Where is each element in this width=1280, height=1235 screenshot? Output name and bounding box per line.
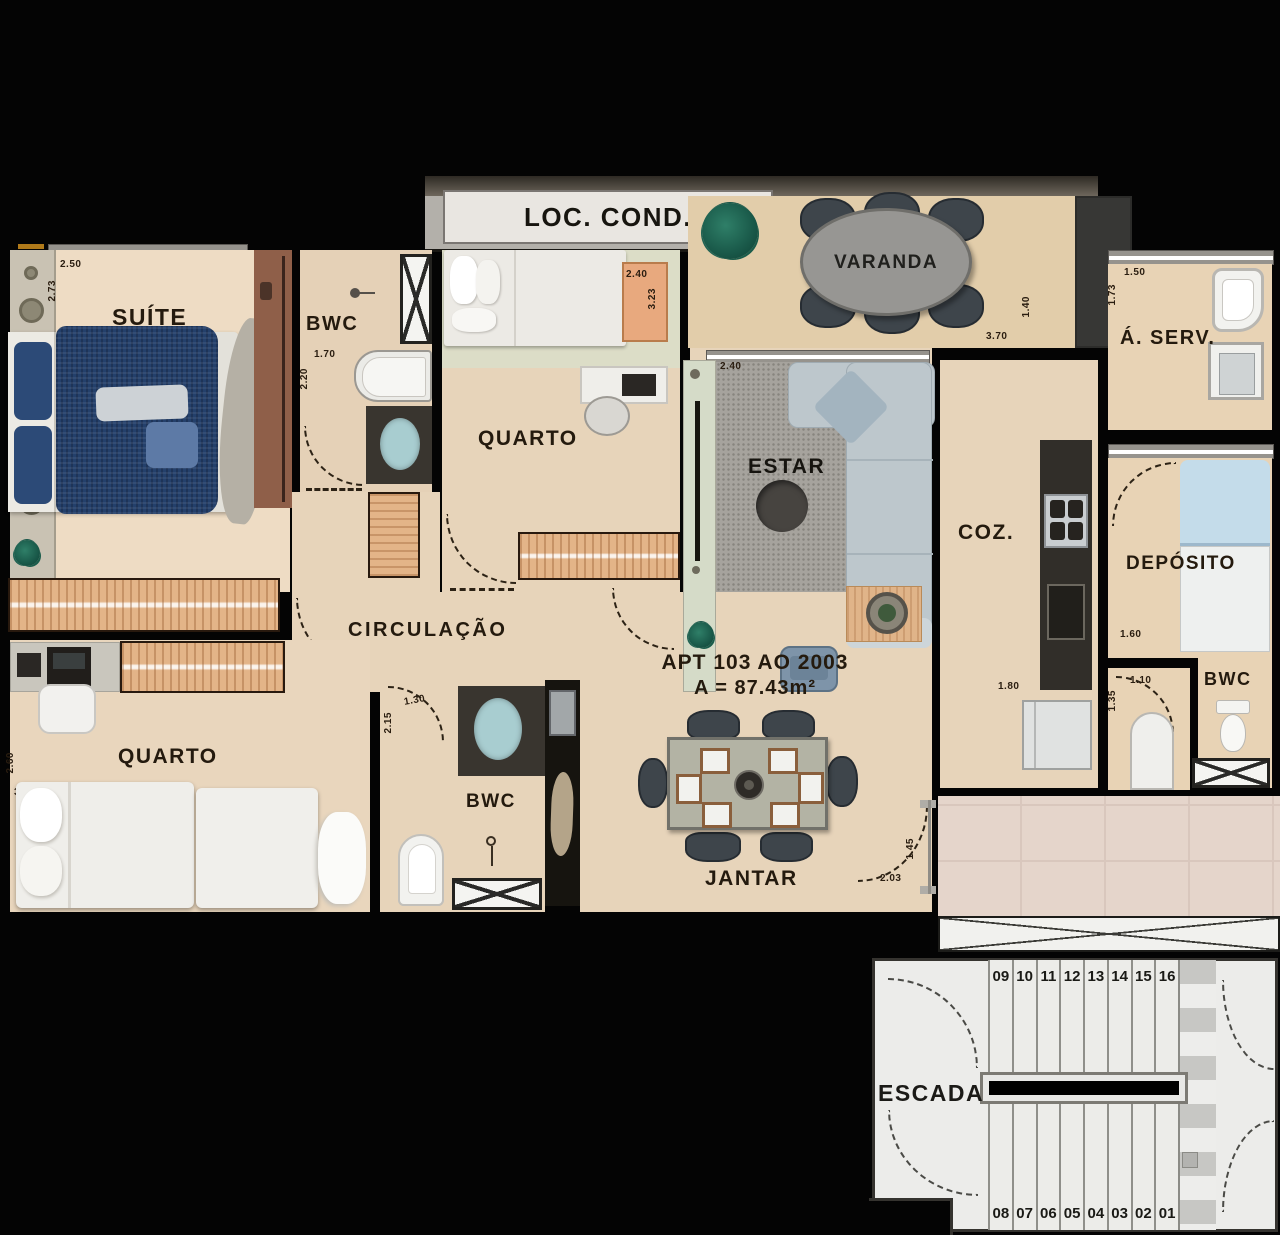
quarto2-bed1 <box>16 782 194 908</box>
place-setting <box>768 748 798 774</box>
dim-varanda-width: 3.70 <box>986 332 1007 342</box>
place-setting <box>798 772 824 804</box>
dim-quarto2-height: 2.60 <box>6 752 16 773</box>
suite-pillow-blue <box>146 422 198 468</box>
dim-aserv-height: 1.73 <box>1108 284 1118 305</box>
stairs-small-square <box>1182 1152 1198 1168</box>
floor-plan: LOC. COND. VARANDA 1.40 3.70 Á. SERV. 1.… <box>0 0 1280 1235</box>
varanda-table: VARANDA <box>800 208 972 316</box>
aserv-label: Á. SERV. <box>1120 328 1215 348</box>
bwc1-sink <box>380 418 420 470</box>
bwc3-sink <box>474 698 522 760</box>
quarto2-label: QUARTO <box>118 746 218 767</box>
place-setting <box>676 774 702 804</box>
cooktop <box>1044 494 1088 548</box>
laundry-tank <box>1212 268 1264 332</box>
stair-number-top: 10 <box>1016 968 1033 985</box>
bwc2-window <box>1192 758 1270 788</box>
quarto1-bench <box>518 532 680 580</box>
sideboard-knob <box>24 266 38 280</box>
quarto1-desk <box>580 366 668 404</box>
side-table-tray <box>866 592 908 634</box>
bwc1-label: BWC <box>306 314 358 334</box>
quarto1-pillow <box>452 308 496 332</box>
bwc3-tall-object <box>550 772 575 857</box>
estar-pouf <box>756 480 808 532</box>
suite-pillow <box>14 426 52 504</box>
sideboard-knob <box>19 298 44 323</box>
apt-line2: A = 87.43m² <box>655 678 855 698</box>
stair-number-bottom: 07 <box>1016 1205 1033 1222</box>
quarto1-desk-chair <box>584 396 630 436</box>
washing-machine <box>1208 342 1264 400</box>
fridge <box>1022 700 1092 770</box>
dim-jantar-door: 2.03 <box>880 874 901 884</box>
quarto2-chair <box>38 684 96 734</box>
elevator-hall-band <box>938 916 1280 952</box>
bwc3-strip-window <box>549 690 576 736</box>
stair-number-top: 16 <box>1159 968 1176 985</box>
escada-label: ESCADA <box>878 1082 984 1105</box>
apt-line1: APT 103 AO 2003 <box>655 652 855 673</box>
hall-door-line <box>928 800 931 894</box>
vestibule-door-leaf <box>1130 712 1174 790</box>
stair-number-bottom: 04 <box>1088 1205 1105 1222</box>
place-setting <box>770 802 800 828</box>
quarto2-pillows-right <box>318 812 366 904</box>
quarto1-threshold <box>450 588 514 591</box>
bwc1-window <box>400 254 432 344</box>
stairs-handrail <box>980 1072 1188 1104</box>
place-setting <box>700 748 730 774</box>
centerpiece <box>734 770 764 800</box>
circ-wood-cabinet <box>368 492 420 578</box>
dim-vestibule-height: 1.35 <box>1108 690 1118 711</box>
suite-pillow-light <box>95 384 188 421</box>
jantar-chair <box>638 758 668 808</box>
stair-number-bottom: 05 <box>1064 1205 1081 1222</box>
dim-aserv-width: 1.50 <box>1124 268 1145 278</box>
stair-number-top: 15 <box>1135 968 1152 985</box>
tv-line <box>695 401 700 561</box>
kitchen-counter <box>1040 440 1092 690</box>
dim-suite-width: 2.50 <box>60 260 81 270</box>
bwc3-faucet-icon <box>486 836 496 846</box>
loc-cond-label: LOC. COND. <box>524 204 692 230</box>
jantar-chair <box>685 832 741 862</box>
deposito-label: DEPÓSITO <box>1126 554 1236 573</box>
suite-door-panel <box>254 250 292 508</box>
dim-suite-height: 2.73 <box>48 280 58 301</box>
dim-varanda-height: 1.40 <box>1022 296 1032 317</box>
stair-number-top: 09 <box>993 968 1010 985</box>
quarto2-bed2 <box>196 788 318 908</box>
dim-bwc1-width: 1.70 <box>314 350 335 360</box>
coz-label: COZ. <box>958 522 1014 543</box>
dim-coz-width: 1.80 <box>998 682 1019 692</box>
jantar-table <box>667 737 828 830</box>
suite-plant <box>14 540 40 566</box>
dim-deposito-width: 1.60 <box>1120 630 1141 640</box>
stair-number-bottom: 02 <box>1135 1205 1152 1222</box>
stair-number-top: 12 <box>1064 968 1081 985</box>
orange-mark <box>18 244 44 249</box>
bwc1-faucet-icon <box>350 288 360 298</box>
bwc3-toilet <box>398 834 444 906</box>
suite-dresser <box>8 578 280 632</box>
bwc3-dark-strip <box>545 680 580 906</box>
circulacao-label: CIRCULAÇÃO <box>348 620 507 640</box>
aserv-window-sill <box>1108 250 1274 265</box>
jantar-chair <box>826 756 858 807</box>
kitchen-sink <box>1047 584 1085 640</box>
escada-notch <box>869 1198 953 1235</box>
varanda-label: VARANDA <box>834 253 938 272</box>
deposito-bed-pillow <box>1180 460 1270 546</box>
jantar-chair <box>762 710 815 740</box>
door-handle <box>260 282 272 300</box>
bwc2-toilet <box>1216 700 1250 714</box>
place-setting <box>702 802 732 828</box>
dim-bwc1-height: 2.20 <box>300 368 310 389</box>
dim-jantar-door-v: 1.45 <box>906 838 916 859</box>
dim-quarto1-width: 2.40 <box>626 270 647 280</box>
bwc3-window <box>452 878 542 910</box>
dim-quarto1-height: 3.23 <box>648 288 658 309</box>
estar-label: ESTAR <box>748 456 825 477</box>
dim-estar-width: 2.40 <box>720 362 741 372</box>
stair-number-bottom: 08 <box>993 1205 1010 1222</box>
quarto1-bed <box>444 250 626 346</box>
jantar-chair <box>760 832 813 862</box>
estar-plant <box>688 622 714 648</box>
quarto1-pillow <box>450 256 478 304</box>
stair-number-top: 13 <box>1088 968 1105 985</box>
jantar-chair <box>687 710 740 740</box>
stair-number-bottom: 03 <box>1111 1205 1128 1222</box>
deposito-window-sill <box>1108 444 1274 459</box>
suite-pillow <box>14 342 52 420</box>
varanda-plant <box>702 203 758 259</box>
bwc2-toilet-bowl <box>1220 714 1246 752</box>
dim-vestibule-width: 1.10 <box>1130 676 1151 686</box>
bwc3-label: BWC <box>466 792 516 811</box>
bathtub <box>354 350 432 402</box>
quarto1-label: QUARTO <box>478 428 578 449</box>
bwc2-label: BWC <box>1204 670 1252 688</box>
quarto1-pillow <box>476 260 500 304</box>
stair-number-top: 11 <box>1040 968 1056 985</box>
jantar-label: JANTAR <box>705 868 798 889</box>
stair-number-bottom: 01 <box>1159 1205 1176 1222</box>
bwc1-threshold <box>306 488 362 491</box>
hall-floor <box>938 796 1280 916</box>
quarto2-dresser <box>120 641 285 693</box>
stair-number-top: 14 <box>1111 968 1128 985</box>
stair-number-bottom: 06 <box>1040 1205 1057 1222</box>
